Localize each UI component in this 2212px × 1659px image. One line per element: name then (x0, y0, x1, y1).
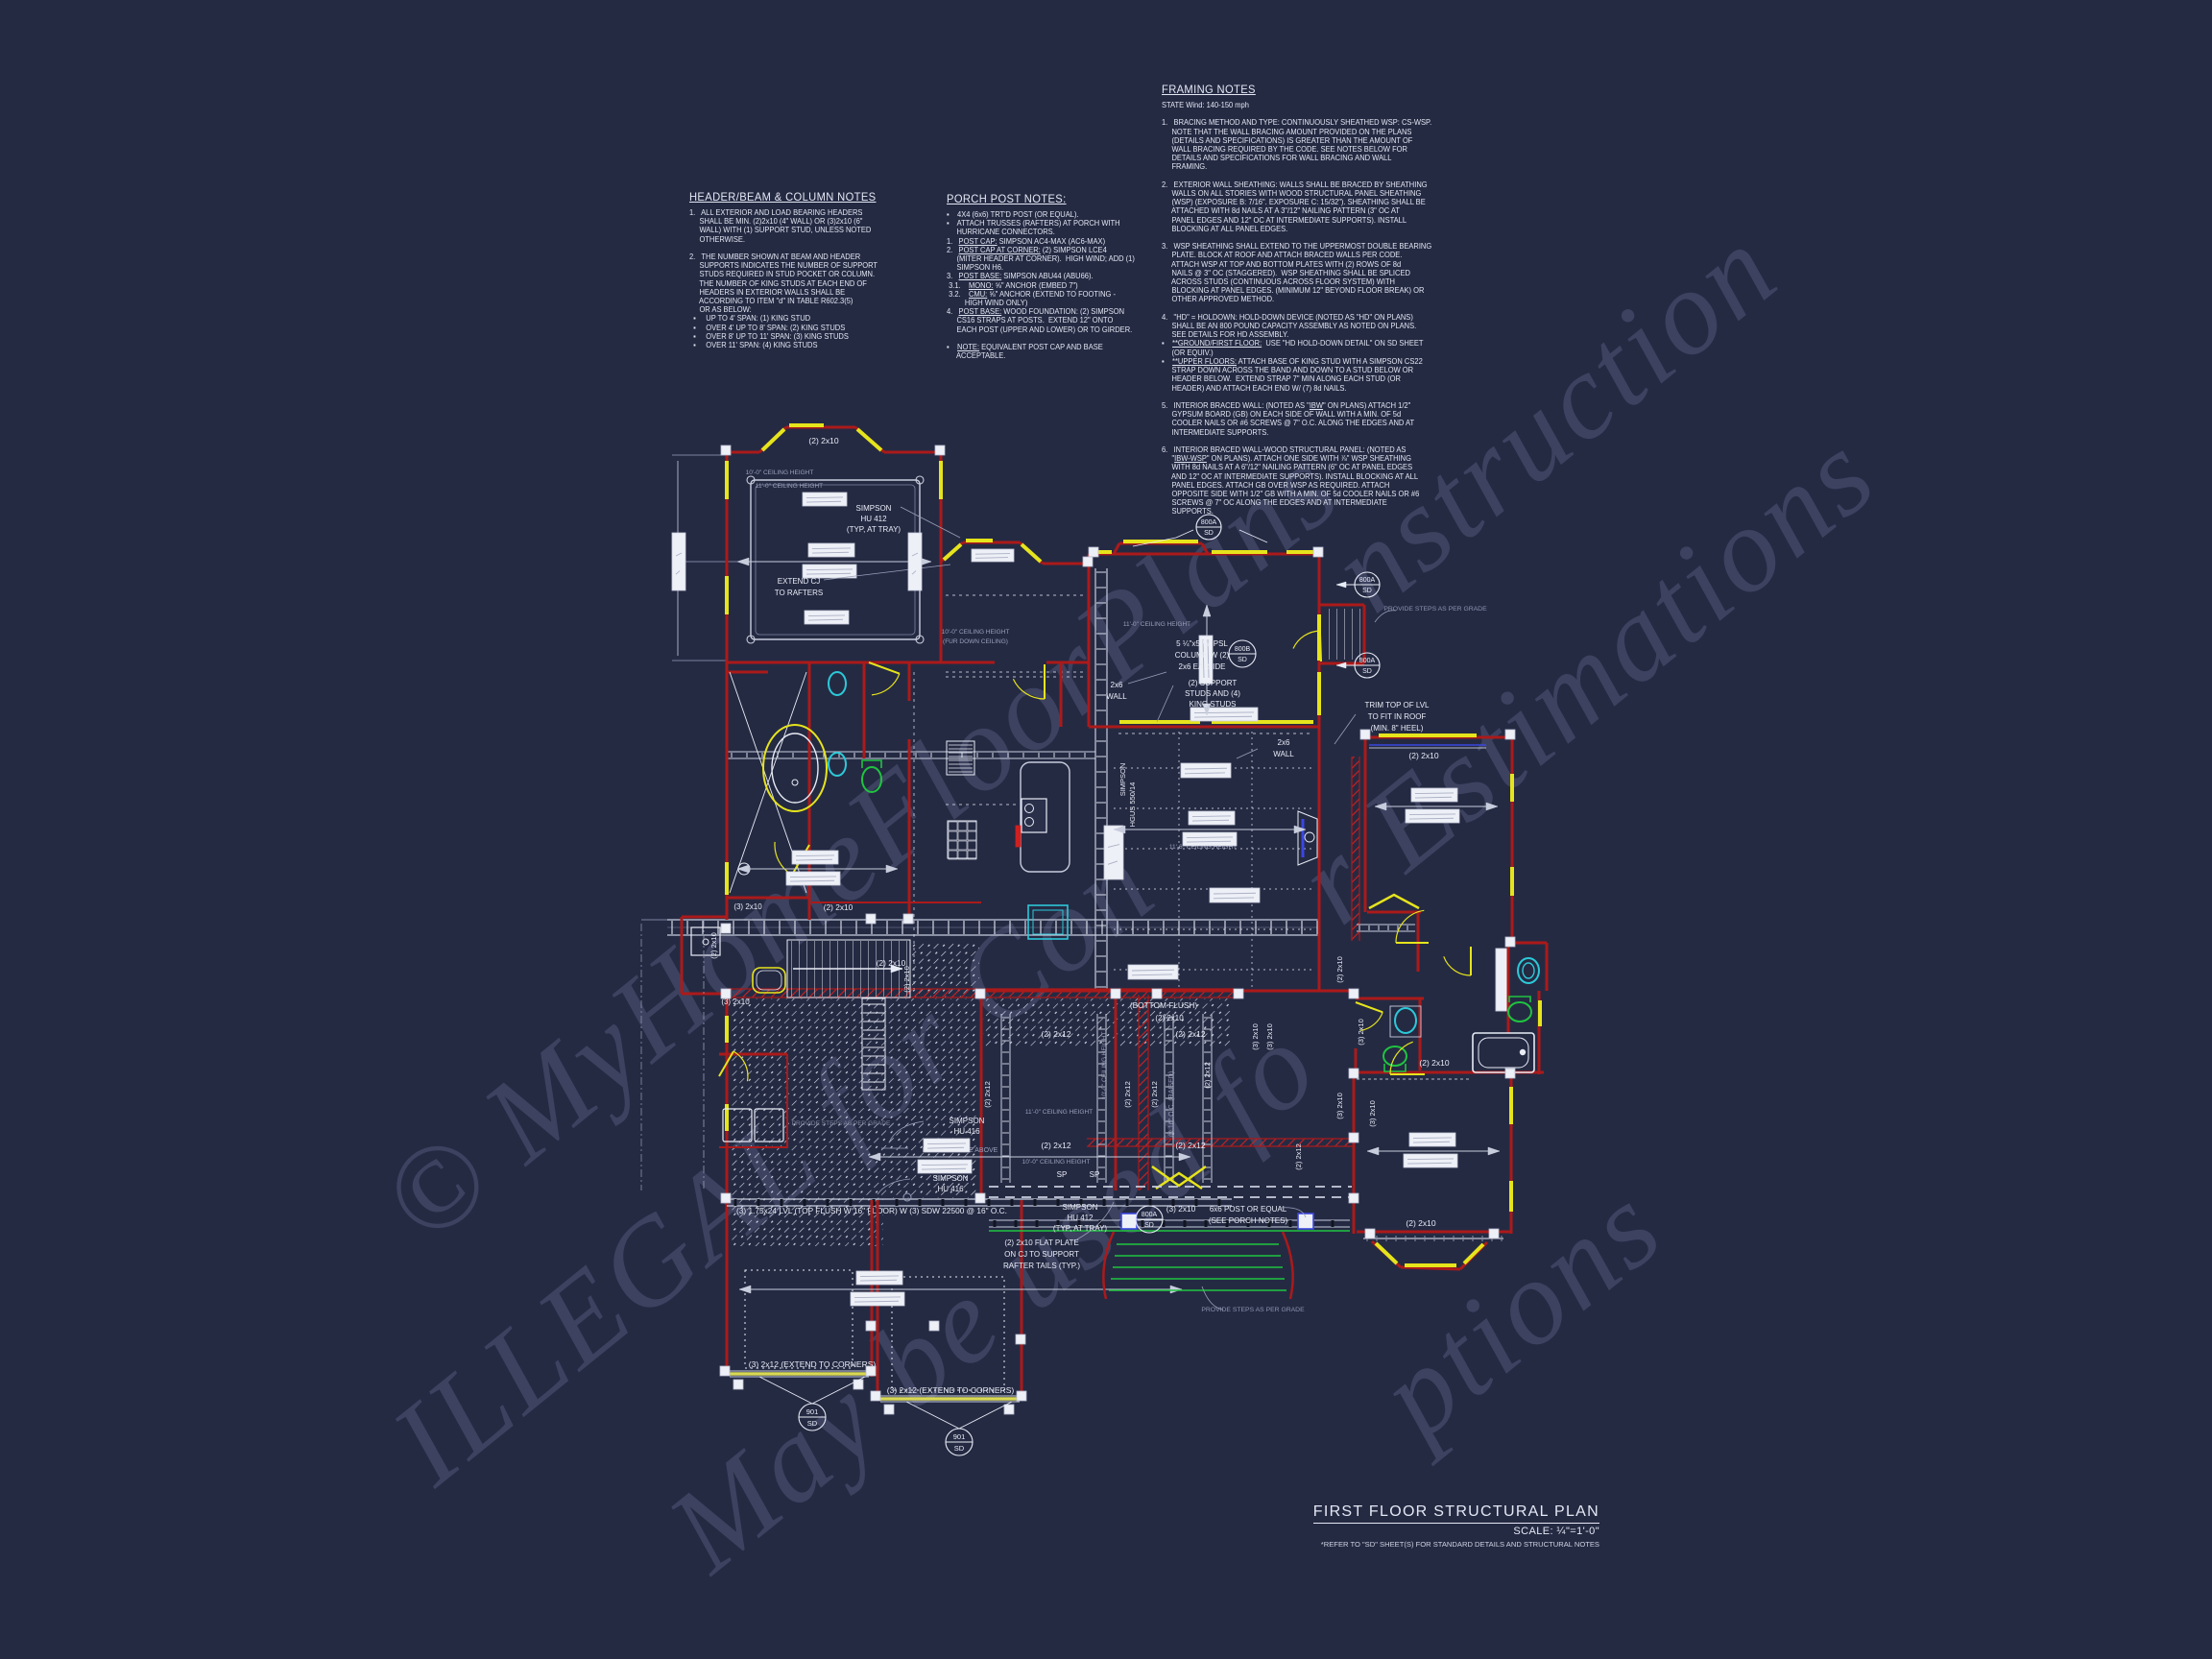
svg-text:COLUMN W (2): COLUMN W (2) (1175, 651, 1230, 660)
svg-text:KING STUDS: KING STUDS (1190, 700, 1237, 709)
svg-text:(2) 2x10: (2) 2x10 (1406, 1218, 1435, 1228)
svg-text:SD: SD (1204, 530, 1214, 537)
svg-text:(3) 2x10: (3) 2x10 (1357, 1019, 1365, 1046)
svg-text:(2) 2x12: (2) 2x12 (1175, 1141, 1205, 1150)
svg-text:(2) 2x10: (2) 2x10 (709, 932, 718, 959)
svg-text:SD: SD (807, 1419, 818, 1428)
svg-text:(3) 2x10: (3) 2x10 (1251, 1023, 1260, 1050)
svg-text:10'-0" CEILING HEIGHT: 10'-0" CEILING HEIGHT (1101, 1032, 1108, 1100)
svg-text:(2) 2x12: (2) 2x12 (1175, 1029, 1205, 1039)
svg-text:800A: 800A (1359, 577, 1376, 584)
svg-text:SIMPSON: SIMPSON (856, 504, 892, 513)
svg-text:800A: 800A (1142, 1212, 1158, 1218)
svg-text:(2) SUPPORT: (2) SUPPORT (1189, 679, 1238, 687)
svg-text:10'-0" CEILING HEIGHT: 10'-0" CEILING HEIGHT (1022, 1159, 1091, 1166)
svg-text:EXTEND CJ: EXTEND CJ (778, 577, 820, 586)
svg-text:(2) 2x12: (2) 2x12 (1123, 1081, 1132, 1108)
svg-text:5 ¼"x5 ¼" PSL: 5 ¼"x5 ¼" PSL (1176, 639, 1228, 648)
svg-text:(2) 2x10: (2) 2x10 (808, 436, 838, 445)
svg-text:@ 16" O.C. (RAISED): @ 16" O.C. (RAISED) (1168, 1071, 1175, 1137)
svg-text:(2) 2x10: (2) 2x10 (902, 966, 911, 993)
svg-text:(SEE PORCH NOTES): (SEE PORCH NOTES) (1209, 1216, 1288, 1225)
svg-text:2x6: 2x6 (1278, 738, 1290, 747)
svg-text:6x6 POST OR EQUAL: 6x6 POST OR EQUAL (1210, 1205, 1287, 1214)
svg-text:(2) 2x12: (2) 2x12 (983, 1081, 992, 1108)
svg-text:SD: SD (1362, 668, 1372, 675)
svg-text:11'-0" CEILING HEIGHT: 11'-0" CEILING HEIGHT (1025, 1109, 1093, 1116)
svg-text:SD: SD (1144, 1222, 1154, 1229)
svg-text:(TYP, AT TRAY): (TYP, AT TRAY) (1053, 1224, 1108, 1233)
svg-text:2x6: 2x6 (1111, 681, 1123, 689)
svg-text:HU 416: HU 416 (937, 1185, 964, 1193)
svg-text:TRIM TOP OF LVL: TRIM TOP OF LVL (1365, 701, 1431, 709)
svg-text:PROVIDE STEPS AS PER GRADE: PROVIDE STEPS AS PER GRADE (792, 1120, 891, 1127)
svg-text:(2) 2x12: (2) 2x12 (1041, 1141, 1070, 1150)
svg-text:2x6 EA. SIDE: 2x6 EA. SIDE (1179, 662, 1226, 671)
svg-text:(2) 2x12: (2) 2x12 (1041, 1029, 1070, 1039)
svg-text:SP: SP (1057, 1170, 1068, 1179)
svg-text:(2) 2x10: (2) 2x10 (1335, 956, 1344, 983)
svg-text:HGUS 550/14: HGUS 550/14 (1128, 782, 1137, 828)
svg-text:901: 901 (806, 1407, 819, 1416)
svg-text:PROVIDE STEPS AS PER GRADE: PROVIDE STEPS AS PER GRADE (1383, 606, 1487, 613)
svg-text:WALL: WALL (1106, 692, 1127, 701)
svg-text:10'-0" CEILING HEIGHT: 10'-0" CEILING HEIGHT (746, 469, 814, 476)
svg-text:SD: SD (1362, 588, 1372, 594)
svg-text:11'-0" CEILING HEIGHT: 11'-0" CEILING HEIGHT (756, 483, 823, 490)
svg-text:(2) 2x10: (2) 2x10 (1408, 751, 1438, 760)
svg-text:TO RAFTERS: TO RAFTERS (775, 589, 824, 597)
svg-text:(2) 2x10: (2) 2x10 (824, 902, 854, 912)
svg-text:(2) 2x10: (2) 2x10 (877, 958, 906, 968)
svg-text:(2) 2x12: (2) 2x12 (1294, 1143, 1303, 1170)
svg-text:(TYP, AT TRAY): (TYP, AT TRAY) (847, 525, 902, 534)
svg-text:800A: 800A (1359, 658, 1376, 664)
svg-text:SIMPSON: SIMPSON (933, 1174, 969, 1183)
svg-text:(3) 2x10: (3) 2x10 (1166, 1204, 1196, 1214)
svg-text:RAFTER TAILS (TYP.): RAFTER TAILS (TYP.) (1003, 1262, 1080, 1270)
svg-text:HU 416: HU 416 (953, 1127, 980, 1136)
svg-text:STUDS AND (4): STUDS AND (4) (1185, 689, 1240, 698)
svg-text:10'-0" CEILING HEIGHT: 10'-0" CEILING HEIGHT (942, 629, 1010, 636)
svg-text:(3) 2x10: (3) 2x10 (733, 902, 762, 911)
svg-text:TO FIT IN ROOF: TO FIT IN ROOF (1368, 712, 1427, 721)
svg-text:(3) 2x10: (3) 2x10 (1265, 1023, 1274, 1050)
svg-text:SP: SP (1090, 1170, 1100, 1179)
svg-text:11'-0" CEILING HEIGHT: 11'-0" CEILING HEIGHT (1123, 621, 1190, 628)
svg-text:(2) 2x10: (2) 2x10 (1155, 1014, 1184, 1022)
svg-text:SD: SD (1238, 657, 1247, 663)
svg-text:(FUR DOWN CEILING): (FUR DOWN CEILING) (943, 638, 1008, 645)
svg-text:HU 412: HU 412 (1067, 1214, 1094, 1222)
svg-text:901: 901 (953, 1432, 966, 1441)
svg-text:(2) 2x12: (2) 2x12 (1150, 1081, 1159, 1108)
svg-text:SIMPSON: SIMPSON (1063, 1203, 1098, 1212)
svg-text:800B: 800B (1235, 646, 1251, 653)
svg-text:(3) 2x10: (3) 2x10 (1335, 1093, 1344, 1119)
svg-text:(3) 2x12 (EXTEND TO CORNERS): (3) 2x12 (EXTEND TO CORNERS) (749, 1359, 877, 1369)
svg-text:ON CJ TO SUPPORT: ON CJ TO SUPPORT (1004, 1250, 1079, 1259)
svg-text:WALL: WALL (1273, 750, 1294, 758)
svg-text:(2) 2x10: (2) 2x10 (1419, 1058, 1449, 1068)
svg-text:HU 412: HU 412 (860, 515, 887, 523)
svg-text:(2) 2x12: (2) 2x12 (1203, 1062, 1212, 1089)
svg-text:(BOTTOM FLUSH): (BOTTOM FLUSH) (1130, 1000, 1198, 1010)
svg-text:800A: 800A (1201, 519, 1217, 526)
svg-text:SIMPSON: SIMPSON (950, 1117, 985, 1125)
svg-text:(2) 2x10 FLAT PLATE: (2) 2x10 FLAT PLATE (1004, 1238, 1078, 1247)
svg-text:(3) 2x12 (EXTEND TO CORNERS): (3) 2x12 (EXTEND TO CORNERS) (887, 1385, 1015, 1395)
svg-text:(3) 2x10: (3) 2x10 (1368, 1100, 1377, 1127)
svg-text:SD: SD (954, 1444, 965, 1453)
svg-text:(MIN. 8" HEEL): (MIN. 8" HEEL) (1371, 724, 1424, 733)
